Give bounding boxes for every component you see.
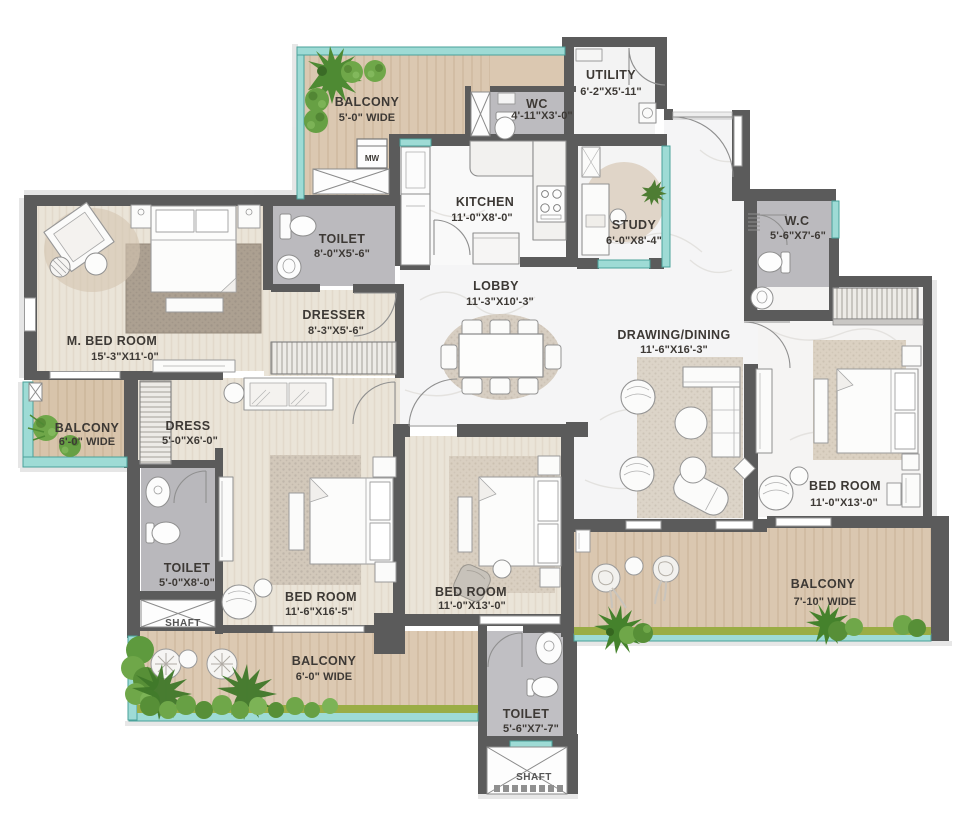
svg-text:11'-6"X16'-3": 11'-6"X16'-3" <box>640 344 708 356</box>
svg-text:7'-10" WIDE: 7'-10" WIDE <box>794 596 857 608</box>
svg-text:8'-3"X5'-6": 8'-3"X5'-6" <box>308 325 364 337</box>
svg-text:SHAFT: SHAFT <box>516 772 552 783</box>
svg-text:5'-6"X7'-6": 5'-6"X7'-6" <box>770 230 826 242</box>
svg-text:11'-0"X13'-0": 11'-0"X13'-0" <box>438 600 506 612</box>
svg-text:KITCHEN: KITCHEN <box>456 195 514 209</box>
svg-text:DRESSER: DRESSER <box>302 308 365 322</box>
svg-text:DRAWING/DINING: DRAWING/DINING <box>617 328 730 342</box>
svg-text:DRESS: DRESS <box>165 419 210 433</box>
svg-text:BALCONY: BALCONY <box>335 95 400 109</box>
svg-text:8'-0"X5'-6": 8'-0"X5'-6" <box>314 248 370 260</box>
svg-text:11'-3"X10'-3": 11'-3"X10'-3" <box>466 296 534 308</box>
svg-text:5'-0"X6'-0": 5'-0"X6'-0" <box>162 435 218 447</box>
svg-text:W.C: W.C <box>785 214 810 228</box>
svg-text:SHAFT: SHAFT <box>165 618 201 629</box>
svg-text:5'-0" WIDE: 5'-0" WIDE <box>339 112 396 124</box>
svg-text:6'-0"X8'-4": 6'-0"X8'-4" <box>606 235 662 247</box>
svg-text:15'-3"X11'-0": 15'-3"X11'-0" <box>91 351 159 363</box>
svg-text:BED ROOM: BED ROOM <box>435 585 507 599</box>
svg-text:6'-2"X5'-11": 6'-2"X5'-11" <box>580 86 642 98</box>
svg-text:4'-11"X3'-0": 4'-11"X3'-0" <box>511 110 573 122</box>
svg-text:BALCONY: BALCONY <box>791 577 856 591</box>
svg-text:MW: MW <box>365 154 380 163</box>
svg-text:M. BED ROOM: M. BED ROOM <box>67 334 158 348</box>
svg-text:TOILET: TOILET <box>164 561 211 575</box>
svg-text:BALCONY: BALCONY <box>292 654 357 668</box>
svg-text:11'-0"X8'-0": 11'-0"X8'-0" <box>451 212 513 224</box>
svg-text:STUDY: STUDY <box>612 218 657 232</box>
svg-text:UTILITY: UTILITY <box>586 68 636 82</box>
svg-text:5'-0"X8'-0": 5'-0"X8'-0" <box>159 577 215 589</box>
svg-text:TOILET: TOILET <box>319 232 366 246</box>
svg-text:TOILET: TOILET <box>503 707 550 721</box>
svg-text:5'-6"X7'-7": 5'-6"X7'-7" <box>503 723 559 735</box>
svg-text:11'-0"X13'-0": 11'-0"X13'-0" <box>810 497 878 509</box>
svg-text:WC: WC <box>526 97 548 111</box>
svg-text:LOBBY: LOBBY <box>473 279 519 293</box>
svg-text:BALCONY: BALCONY <box>55 421 120 435</box>
svg-text:BED ROOM: BED ROOM <box>809 479 881 493</box>
svg-text:6'-0" WIDE: 6'-0" WIDE <box>59 436 116 448</box>
svg-text:6'-0" WIDE: 6'-0" WIDE <box>296 671 353 683</box>
svg-text:11'-6"X16'-5": 11'-6"X16'-5" <box>285 606 353 618</box>
svg-text:BED ROOM: BED ROOM <box>285 590 357 604</box>
